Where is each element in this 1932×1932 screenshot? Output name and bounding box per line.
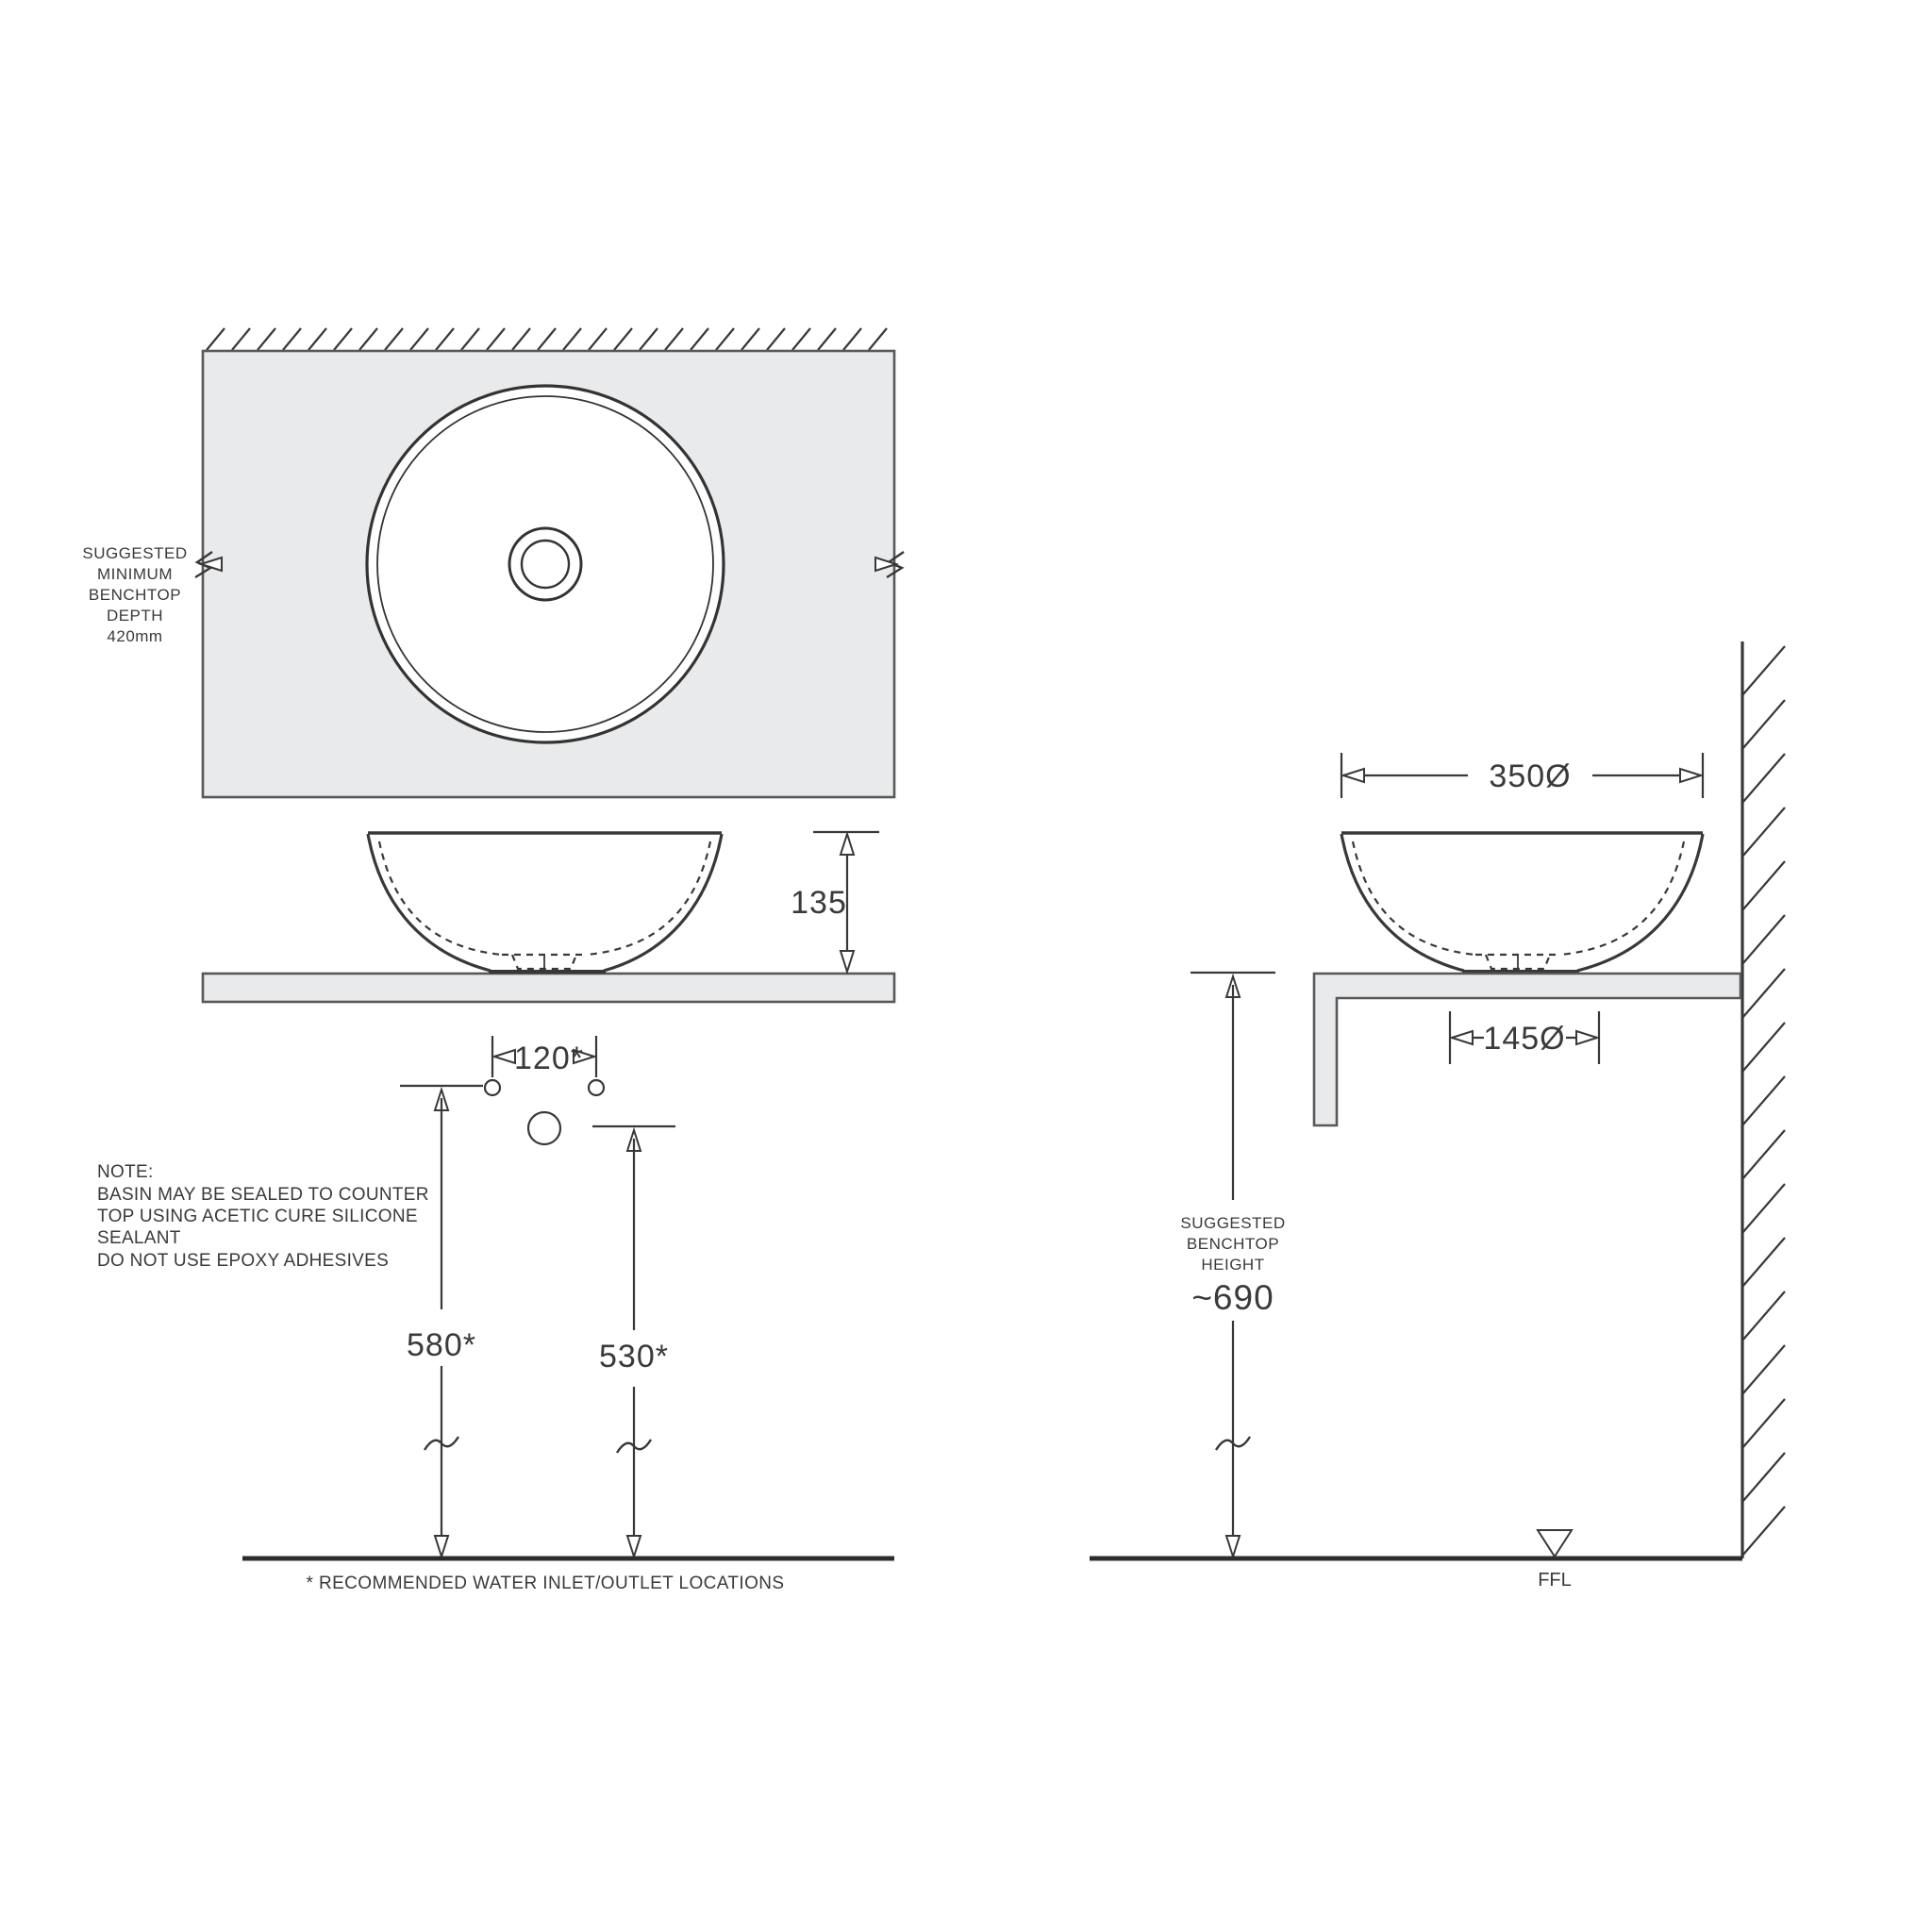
bench-height-value: ~690 — [1191, 1278, 1274, 1317]
base-diameter-value: 145Ø — [1483, 1021, 1565, 1057]
dim-arrow-left-icon — [1452, 1031, 1473, 1044]
bench-height-dimension: SUGGESTED BENCHTOP HEIGHT ~690 — [1180, 973, 1285, 1557]
water-inlet-left-circle — [485, 1080, 500, 1095]
ffl-label: FFL — [1538, 1570, 1572, 1591]
dim-arrow-left-icon — [1343, 769, 1364, 782]
plan-view: SUGGESTED MINIMUM BENCHTOP DEPTH 420mm — [82, 328, 904, 797]
depth-note-line: SUGGESTED — [82, 544, 187, 562]
note-line: BASIN MAY BE SEALED TO COUNTER — [97, 1185, 429, 1205]
note-line: DO NOT USE EPOXY ADHESIVES — [97, 1251, 389, 1271]
bench-height-note: SUGGESTED BENCHTOP HEIGHT ~690 — [1180, 1214, 1285, 1317]
sealant-note: NOTE: BASIN MAY BE SEALED TO COUNTER TOP… — [97, 1162, 429, 1271]
rim-diameter-value: 350Ø — [1489, 758, 1571, 794]
outlet-height-value: 530* — [599, 1339, 669, 1374]
bowl-right-wall-side — [1577, 834, 1703, 971]
footnote-text: * RECOMMENDED WATER INLET/OUTLET LOCATIO… — [307, 1574, 785, 1593]
benchtop-front-bar — [203, 974, 894, 1002]
ffl-level-marker-icon — [1538, 1530, 1572, 1557]
water-inlet-right-circle — [589, 1080, 604, 1095]
bowl-inner-dashed-left — [379, 841, 502, 955]
inlet-outlet-layout: 120* 580* 530* NOTE: BASIN MAY BE SEALED — [97, 1036, 894, 1593]
note-line: SEALANT — [97, 1228, 181, 1248]
base-diameter-dimension: 145Ø — [1450, 1011, 1599, 1064]
inlet-height-dimension: 580* — [400, 1086, 483, 1557]
dim-arrow-down-icon — [435, 1536, 448, 1557]
wall-hatch-side — [1742, 646, 1785, 1556]
dim-arrow-down-icon — [841, 951, 854, 972]
depth-note-line: BENCHTOP — [89, 586, 181, 604]
basin-height-value: 135 — [791, 885, 847, 921]
dim-arrow-down-icon — [1226, 1536, 1240, 1557]
front-elevation: 135 — [203, 832, 894, 1002]
basin-rim-outer-circle — [367, 386, 724, 742]
technical-drawing-page: SUGGESTED MINIMUM BENCHTOP DEPTH 420mm 1… — [0, 0, 1932, 1932]
depth-note-line: MINIMUM — [97, 565, 173, 583]
inlet-height-value: 580* — [407, 1327, 476, 1363]
dim-arrow-up-icon — [841, 834, 854, 855]
height-note-line: HEIGHT — [1201, 1256, 1264, 1274]
note-line: TOP USING ACETIC CURE SILICONE — [97, 1207, 418, 1226]
dim-arrow-left-icon — [494, 1050, 515, 1063]
inlet-spacing-dimension: 120* — [492, 1036, 596, 1077]
bowl-inner-dashed-right-side — [1560, 841, 1684, 955]
note-line: NOTE: — [97, 1162, 154, 1182]
water-outlet-circle — [528, 1112, 560, 1144]
side-elevation: 350Ø 145Ø SUGGESTED — [1090, 641, 1785, 1591]
wall-hatch-plan — [207, 328, 887, 350]
dim-arrow-right-icon — [1576, 1031, 1597, 1044]
basin-height-dimension: 135 — [791, 832, 879, 972]
height-note-line: BENCHTOP — [1187, 1235, 1279, 1253]
benchtop-depth-note: SUGGESTED MINIMUM BENCHTOP DEPTH 420mm — [82, 544, 187, 645]
inlet-spacing-value: 120* — [514, 1041, 584, 1076]
bowl-right-wall — [604, 834, 722, 971]
rim-diameter-dimension: 350Ø — [1341, 753, 1703, 798]
outlet-height-dimension: 530* — [592, 1126, 675, 1557]
bowl-inner-dashed-right — [587, 841, 710, 955]
height-note-line: SUGGESTED — [1180, 1214, 1285, 1232]
depth-note-line: 420mm — [107, 627, 162, 645]
dim-arrow-right-icon — [1680, 769, 1701, 782]
dim-arrow-down-icon — [627, 1536, 641, 1557]
bowl-inner-dashed-left-side — [1353, 841, 1475, 955]
depth-note-line: DEPTH — [107, 607, 163, 625]
basin-installation-drawing: SUGGESTED MINIMUM BENCHTOP DEPTH 420mm 1… — [0, 0, 1932, 1932]
